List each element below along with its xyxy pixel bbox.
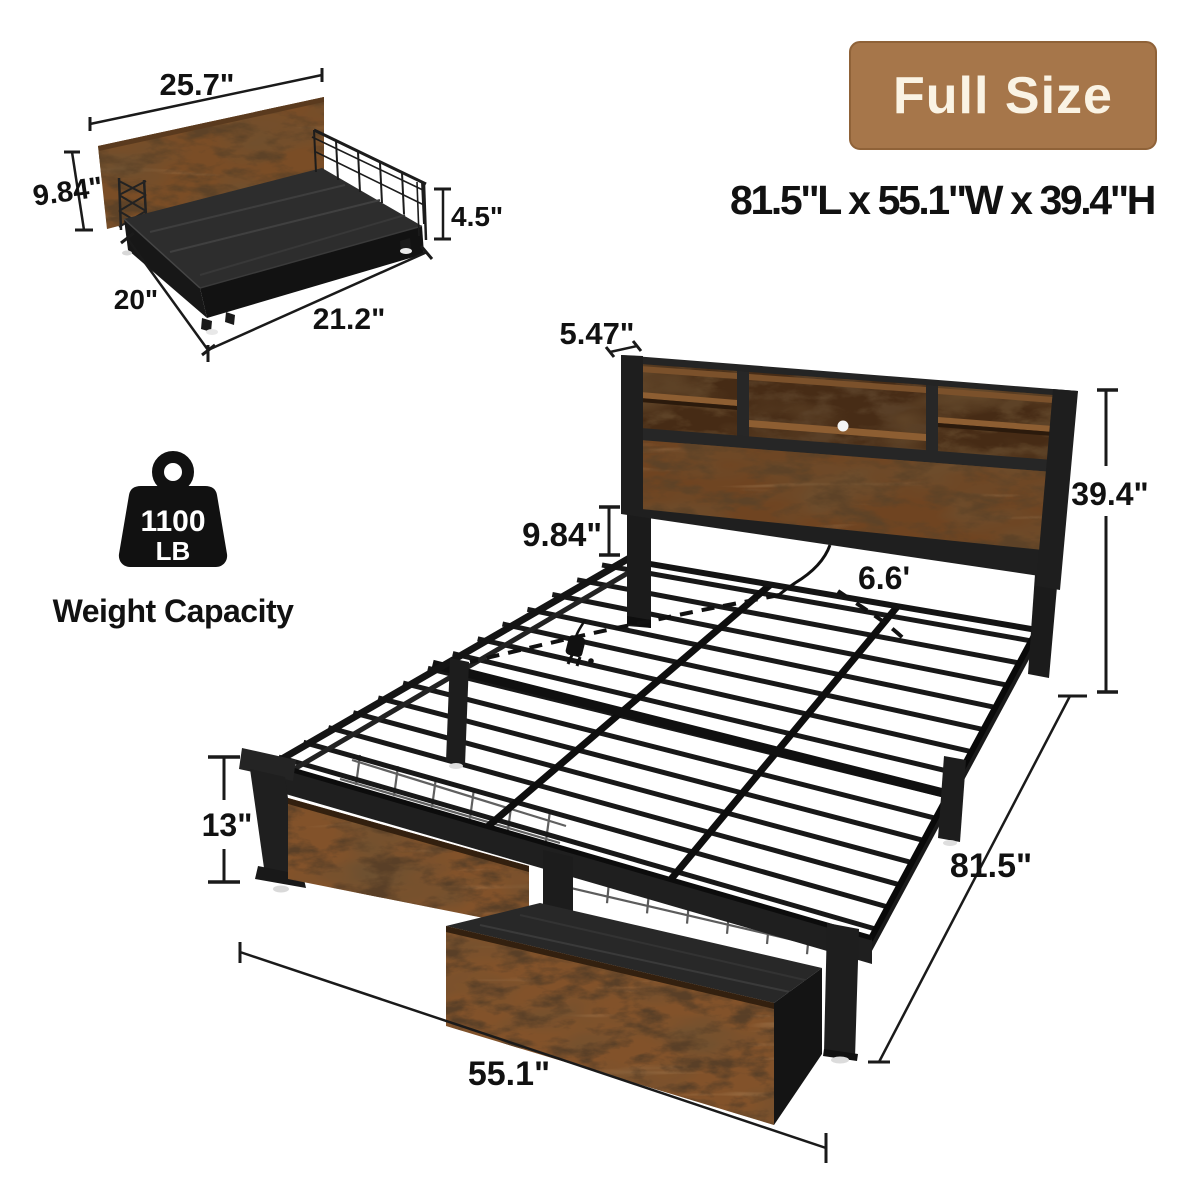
svg-text:5.47": 5.47" [559,316,634,351]
svg-text:Full Size: Full Size [893,67,1113,125]
svg-text:13": 13" [202,807,253,843]
svg-text:9.84": 9.84" [522,516,602,553]
svg-text:81.5"L x 55.1"W x 39.4"H: 81.5"L x 55.1"W x 39.4"H [730,177,1154,223]
svg-text:6.6': 6.6' [858,560,910,596]
svg-text:25.7": 25.7" [159,67,234,102]
svg-text:21.2": 21.2" [313,303,386,336]
svg-text:Weight Capacity: Weight Capacity [53,593,295,629]
svg-text:81.5": 81.5" [950,847,1032,885]
svg-text:1100: 1100 [140,505,205,538]
svg-text:55.1": 55.1" [468,1055,550,1093]
svg-text:LB: LB [156,536,191,566]
svg-text:39.4": 39.4" [1071,476,1148,512]
svg-text:20": 20" [114,284,158,315]
svg-text:4.5": 4.5" [451,201,503,232]
